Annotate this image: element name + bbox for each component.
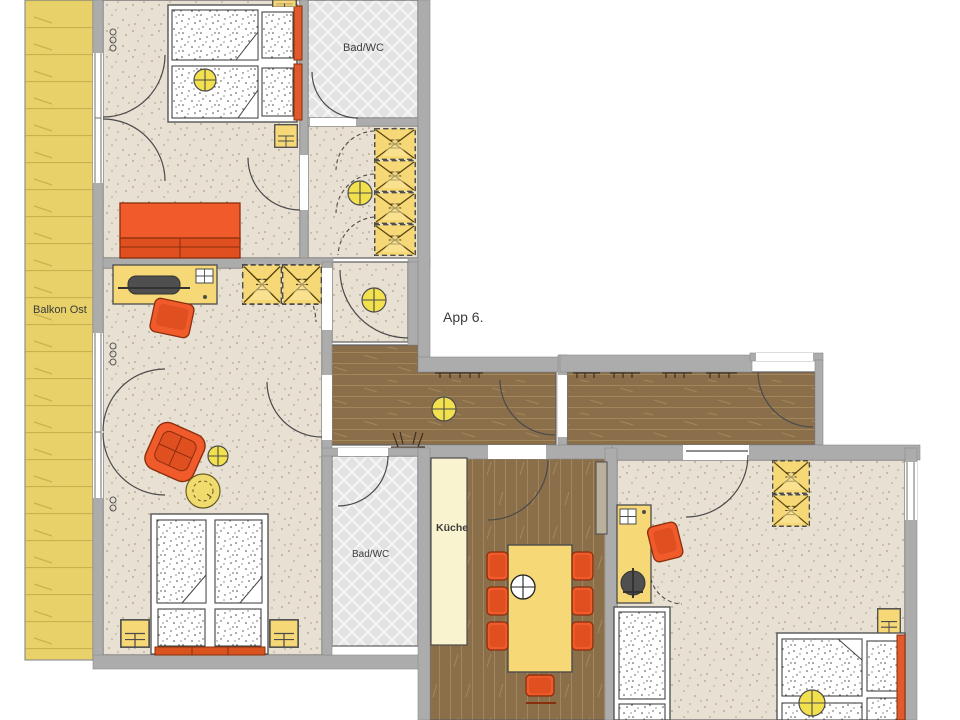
pillow	[158, 609, 205, 646]
headboard	[294, 6, 302, 60]
headboard	[155, 647, 265, 655]
wardrobe	[375, 193, 416, 224]
nightstand	[273, 0, 297, 7]
round-table	[186, 474, 220, 508]
nightstand	[878, 609, 901, 634]
corridor-right-floor	[567, 372, 815, 445]
bed-lamp	[194, 69, 216, 91]
dining-chair	[487, 587, 508, 615]
bath-bottom-label: Bad/WC	[352, 549, 389, 560]
wardrobe	[375, 225, 416, 256]
apartment-label: App 6.	[443, 309, 483, 325]
mattress	[619, 612, 665, 699]
tall-cabinet	[596, 462, 607, 534]
sofa	[120, 203, 240, 258]
double-bed	[151, 514, 268, 655]
dining-chair	[487, 552, 508, 580]
kitchen-label: Küche	[436, 522, 468, 534]
pillow	[262, 68, 293, 116]
dining-chair	[572, 622, 593, 650]
balcony-label: Balkon Ost	[33, 304, 87, 316]
headboard	[897, 635, 905, 720]
kitchen-counter	[431, 458, 467, 645]
wardrobe	[375, 161, 416, 192]
ceiling-lamp	[432, 397, 456, 421]
ceiling-lamp	[348, 181, 372, 205]
ceiling-lamp	[208, 446, 228, 466]
wardrobe	[773, 461, 810, 494]
pillow	[262, 12, 293, 58]
dining-chair	[572, 552, 593, 580]
balcony-deck	[25, 0, 93, 660]
bath-top-label: Bad/WC	[343, 42, 384, 54]
desk	[113, 265, 217, 304]
desk-chair	[149, 297, 195, 339]
nightstand	[275, 125, 298, 148]
nightstand	[270, 620, 298, 647]
dining-table	[508, 545, 572, 672]
pillow	[215, 609, 261, 646]
wardrobe	[773, 495, 810, 527]
dining-chair	[572, 587, 593, 615]
dining-chair	[487, 622, 508, 650]
nightstand	[121, 620, 149, 647]
bed-lamp	[799, 690, 825, 716]
pillow	[867, 641, 899, 691]
desk	[617, 505, 651, 603]
vestibule-lamp	[362, 288, 386, 312]
wardrobe	[375, 129, 416, 160]
floor-plan-app-6: Balkon Ost	[0, 0, 960, 720]
mattress	[619, 704, 665, 720]
bed-left	[614, 607, 670, 720]
pillow	[867, 698, 899, 720]
balcony-east: Balkon Ost	[25, 0, 93, 660]
wardrobe	[243, 265, 282, 304]
headboard	[294, 64, 302, 120]
bed-right	[777, 633, 905, 720]
dining-chair	[526, 675, 554, 696]
ceiling-lamp-white	[511, 575, 535, 599]
wardrobe	[283, 265, 322, 304]
floor-plan-canvas: Balkon Ost	[0, 0, 960, 720]
bath-wc-top-floor	[308, 0, 418, 118]
